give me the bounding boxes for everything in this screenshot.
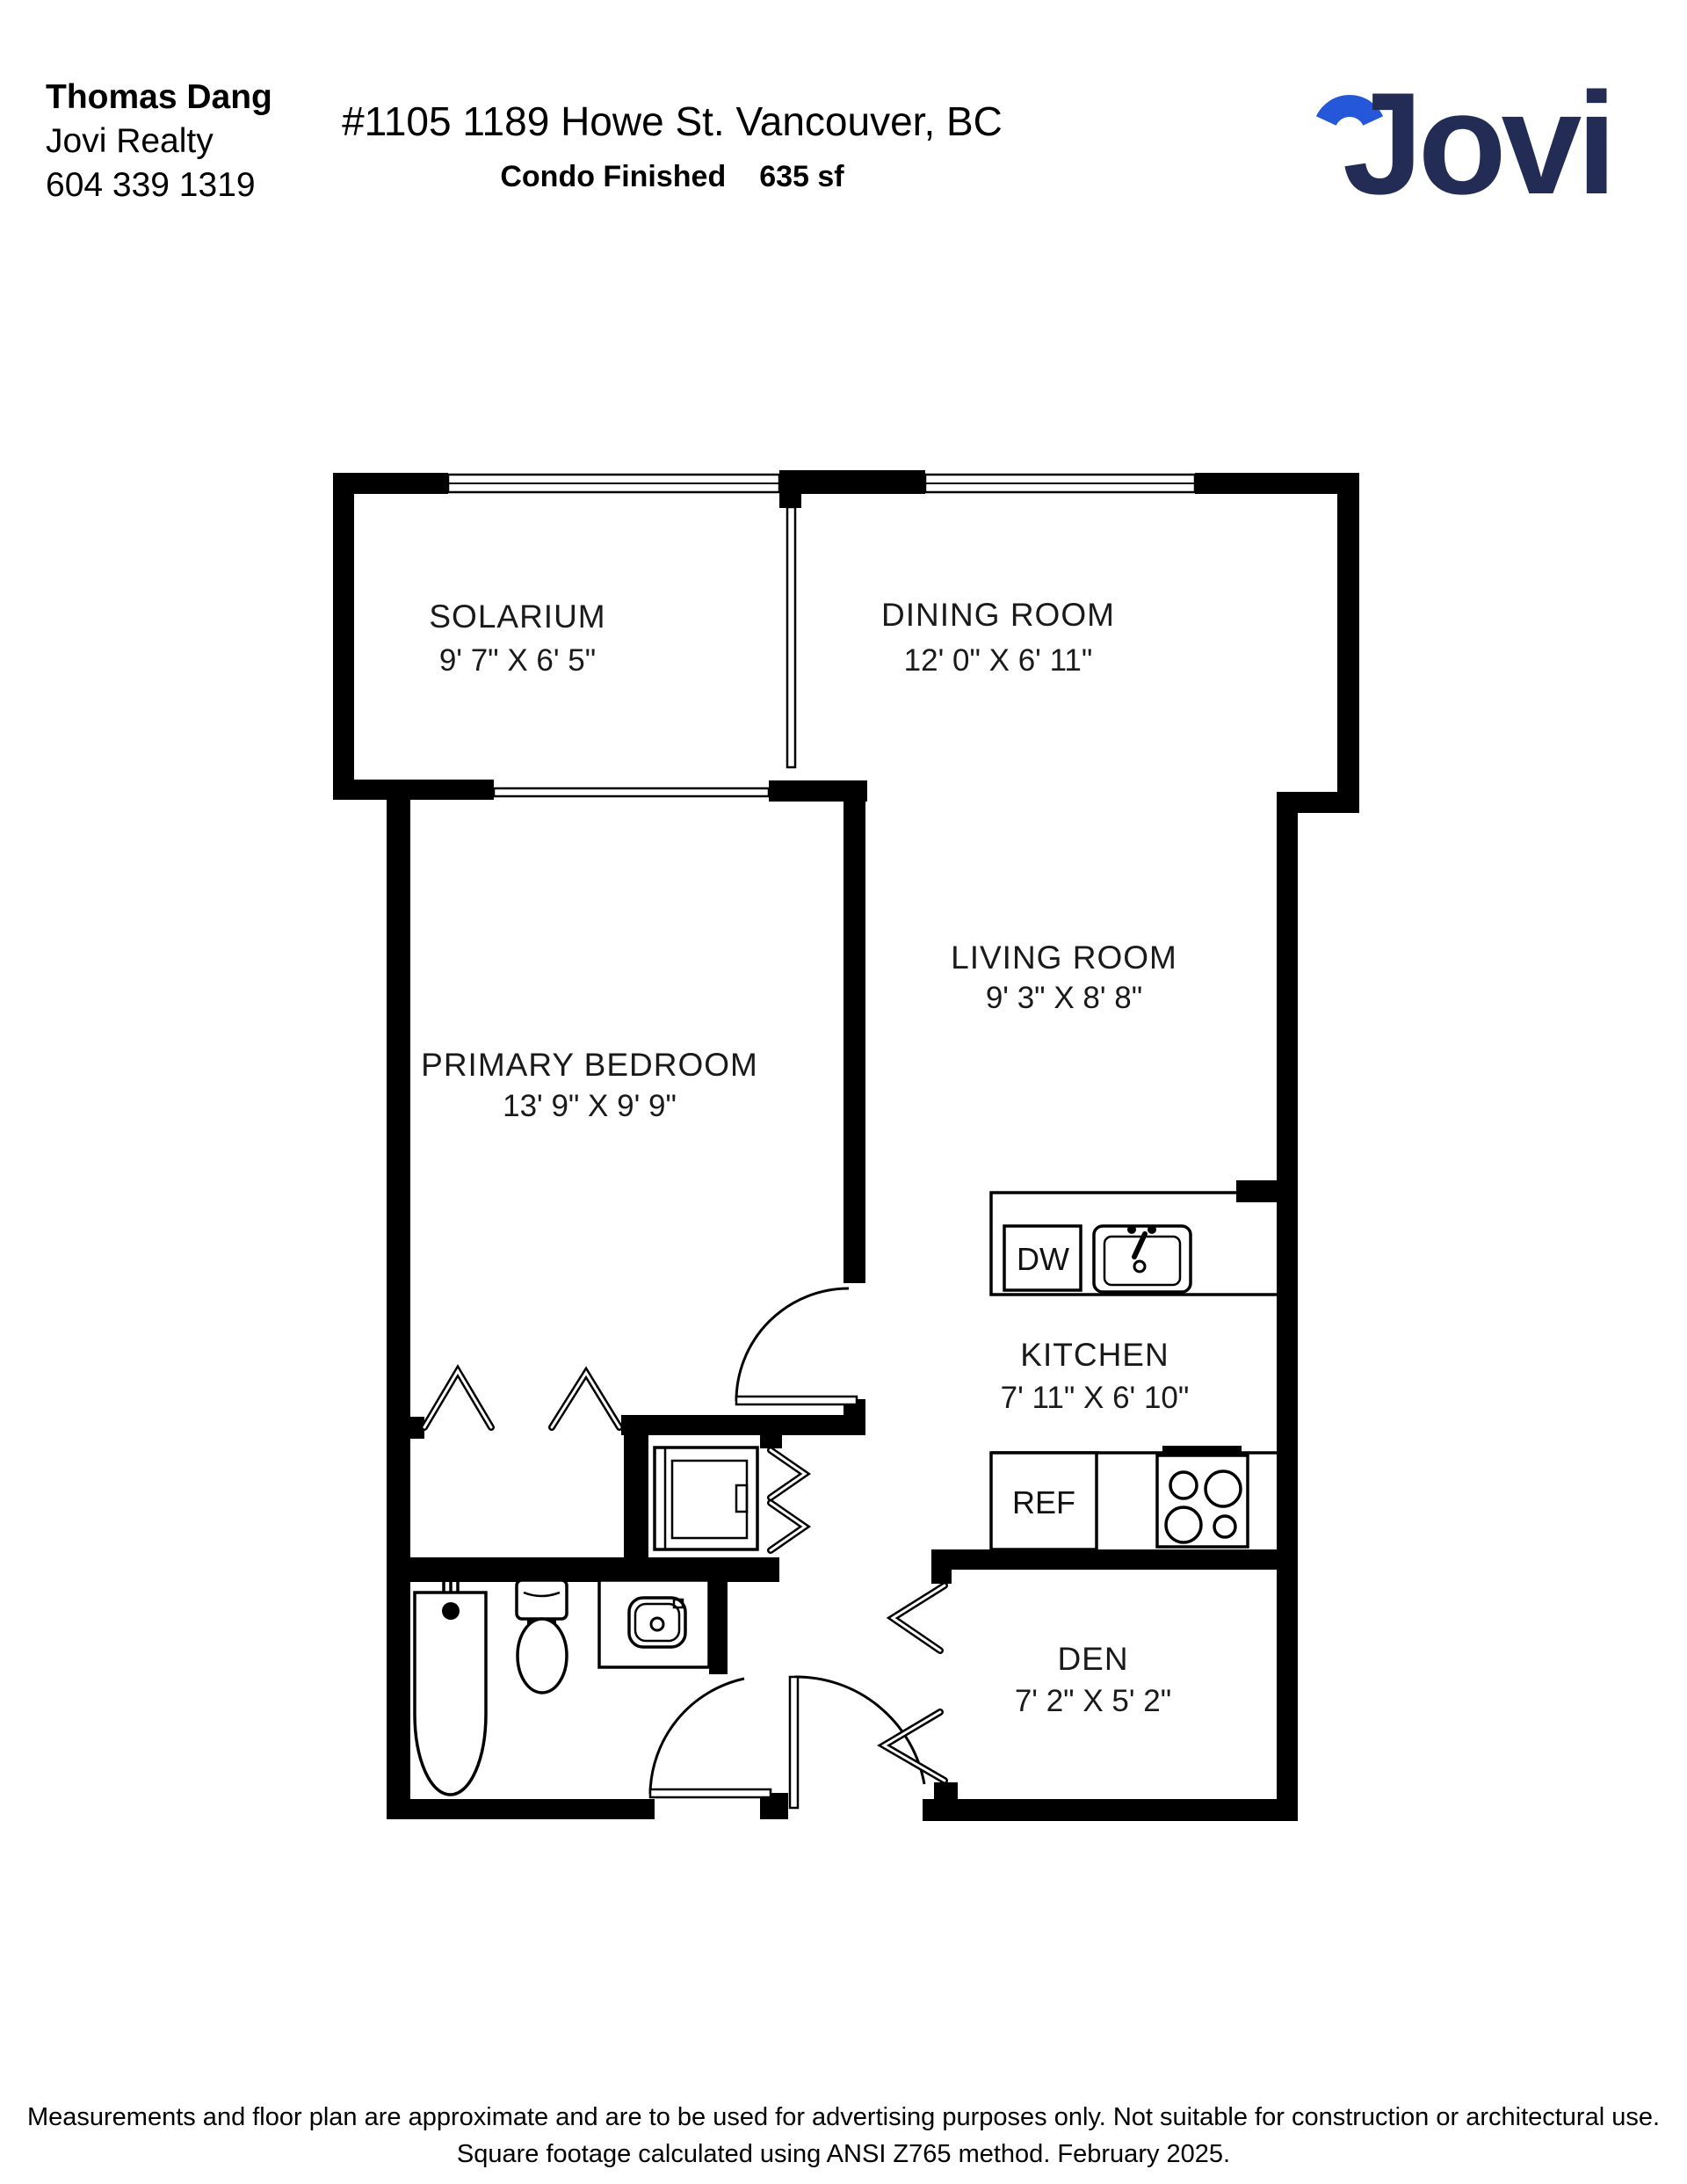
disclaimer: Measurements and floor plan are approxim…: [0, 2099, 1687, 2173]
window: [494, 788, 769, 796]
dishwasher-label: DW: [1017, 1241, 1069, 1277]
wall: [931, 1570, 952, 1584]
room-dims: 13' 9" X 9' 9": [503, 1089, 677, 1123]
bifold-door: [893, 1585, 945, 1651]
windows: [448, 475, 1195, 796]
wall: [333, 473, 448, 494]
room-dims: 7' 11" X 6' 10": [1001, 1381, 1190, 1415]
wall: [779, 494, 801, 508]
toilet-bowl: [518, 1619, 567, 1693]
bifold-door: [552, 1373, 619, 1427]
room-label: DEN: [1057, 1641, 1128, 1677]
bifold-door: [771, 1450, 805, 1498]
wall: [1236, 1180, 1277, 1202]
wall: [779, 470, 925, 494]
wall: [934, 1782, 958, 1799]
wall: [333, 780, 494, 800]
laundry-closet-unit: [655, 1448, 757, 1549]
bifold-door: [771, 1503, 805, 1550]
wall: [923, 1799, 1298, 1821]
wall: [333, 473, 354, 800]
room-label: LIVING ROOM: [951, 940, 1177, 976]
room-label: DINING ROOM: [881, 597, 1115, 633]
wall: [621, 1415, 865, 1435]
bifold-door: [884, 1712, 945, 1781]
sink-drain: [651, 1618, 663, 1630]
bathroom-fixtures: [415, 1576, 709, 1795]
bifold-door: [884, 1712, 945, 1781]
bathtub: [415, 1593, 486, 1795]
entry-door-leaf: [790, 1677, 798, 1808]
disclaimer-line2: Square footage calculated using ANSI Z76…: [0, 2136, 1687, 2173]
room-dims: 7' 2" X 5' 2": [1015, 1684, 1171, 1718]
wall: [624, 1435, 648, 1562]
wall: [387, 780, 410, 1819]
bathroom-door-arc: [650, 1679, 744, 1794]
bifold-door: [424, 1371, 491, 1427]
bathroom-door-leaf: [650, 1789, 771, 1797]
wall: [1277, 792, 1359, 813]
wall: [387, 1799, 655, 1819]
disclaimer-line1: Measurements and floor plan are approxim…: [0, 2099, 1687, 2136]
room-label: SOLARIUM: [429, 599, 605, 635]
room-dims: 9' 3" X 8' 8": [986, 981, 1142, 1015]
room-dims: 12' 0" X 6' 11": [904, 643, 1093, 678]
wall: [1195, 473, 1359, 494]
wall: [1337, 473, 1359, 813]
bifold-door: [893, 1585, 945, 1651]
toilet-tank: [517, 1580, 567, 1619]
room-label: KITCHEN: [1020, 1337, 1169, 1373]
floor-plan: DW REF: [0, 0, 1687, 2184]
faucet-dot: [1148, 1225, 1156, 1234]
bifold-door: [552, 1373, 619, 1427]
window-partition: [787, 507, 795, 767]
wall: [709, 1582, 728, 1674]
room-dims: 9' 7" X 6' 5": [439, 643, 596, 678]
faucet-dot: [1127, 1225, 1136, 1234]
room-label: PRIMARY BEDROOM: [421, 1047, 758, 1083]
wall: [769, 780, 867, 802]
wall: [760, 1435, 782, 1448]
tub-drain: [442, 1602, 460, 1620]
bifold-door: [424, 1371, 491, 1427]
laundry-closet: [655, 1448, 757, 1549]
wall: [931, 1549, 1277, 1570]
bedroom-door-arc: [736, 1288, 849, 1401]
wall: [410, 1557, 779, 1582]
bedroom-door-leaf: [736, 1397, 857, 1404]
wall: [1277, 813, 1298, 1821]
sink-drain: [1134, 1261, 1145, 1272]
refrigerator-label: REF: [1012, 1484, 1075, 1520]
wall: [843, 800, 865, 1283]
